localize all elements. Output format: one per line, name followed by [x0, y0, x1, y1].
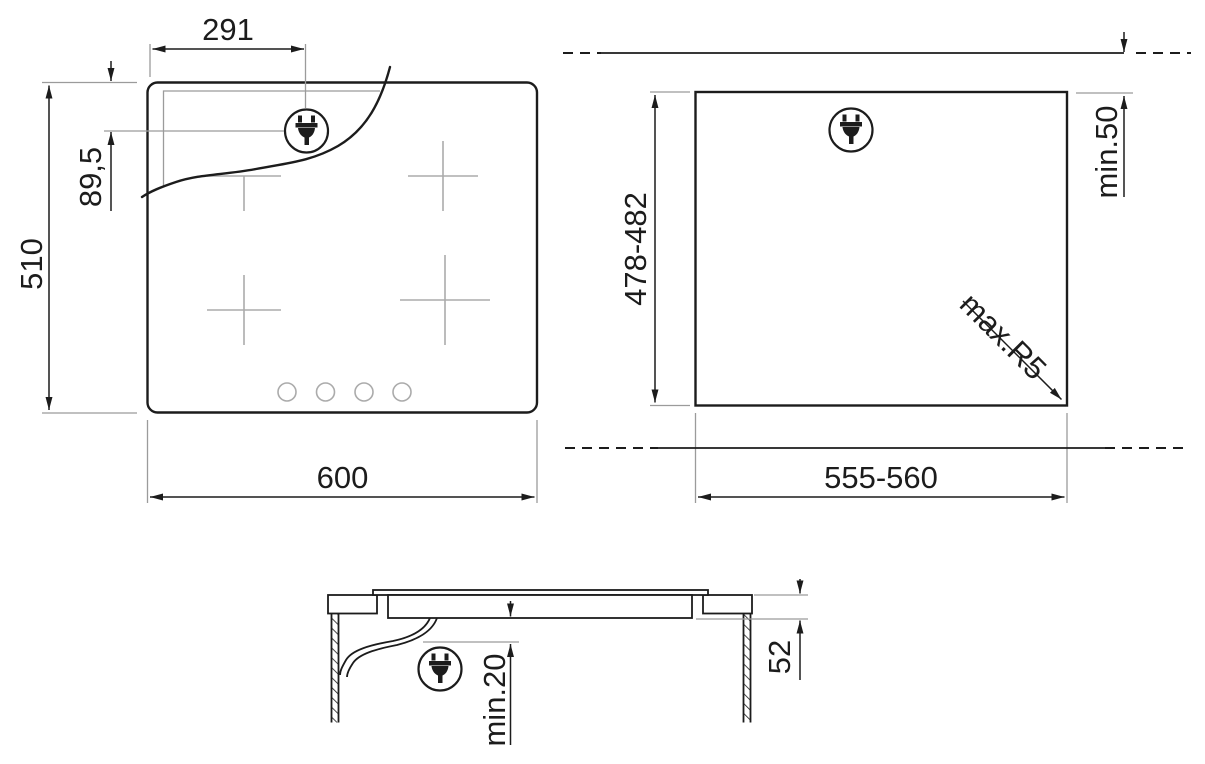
dim-label-hob-height: 52	[762, 640, 797, 674]
worktop-section-right	[703, 595, 752, 614]
cabinet-side-left	[332, 614, 339, 723]
dim-label-wall-clearance: min.50	[1089, 105, 1124, 198]
hob-body	[388, 595, 692, 618]
dim-label-cutout-width: 555-560	[824, 460, 938, 495]
installation-drawing: 291 89,5 510 600	[0, 0, 1205, 764]
dim-cutout-depth: 478-482	[618, 92, 690, 406]
dim-hob-width: 600	[148, 420, 538, 503]
dim-label-plug-offset-x: 291	[202, 12, 254, 47]
hob-top-view: 291 89,5 510 600	[14, 12, 537, 503]
power-plug-icon	[419, 648, 462, 691]
dim-hob-depth: 510	[14, 86, 137, 414]
worktop-cutout-view: 478-482 min.50 max.R5 555-560	[563, 32, 1191, 503]
cabinet-side-right	[744, 614, 751, 723]
hob-outline	[148, 83, 538, 413]
dim-label-hob-width: 600	[317, 460, 369, 495]
power-plug-icon	[830, 109, 873, 152]
dim-wall-clearance: min.50	[1076, 32, 1133, 199]
dim-label-plug-offset-y: 89,5	[73, 147, 108, 207]
worktop-section-left	[328, 595, 377, 614]
dim-cutout-width: 555-560	[696, 413, 1068, 503]
dim-label-cutout-depth: 478-482	[618, 192, 653, 306]
dim-label-bottom-clearance: min.20	[477, 653, 512, 746]
installation-section-view: min.20 52	[328, 579, 808, 747]
dim-label-hob-depth: 510	[14, 238, 49, 290]
power-plug-icon	[285, 110, 328, 153]
